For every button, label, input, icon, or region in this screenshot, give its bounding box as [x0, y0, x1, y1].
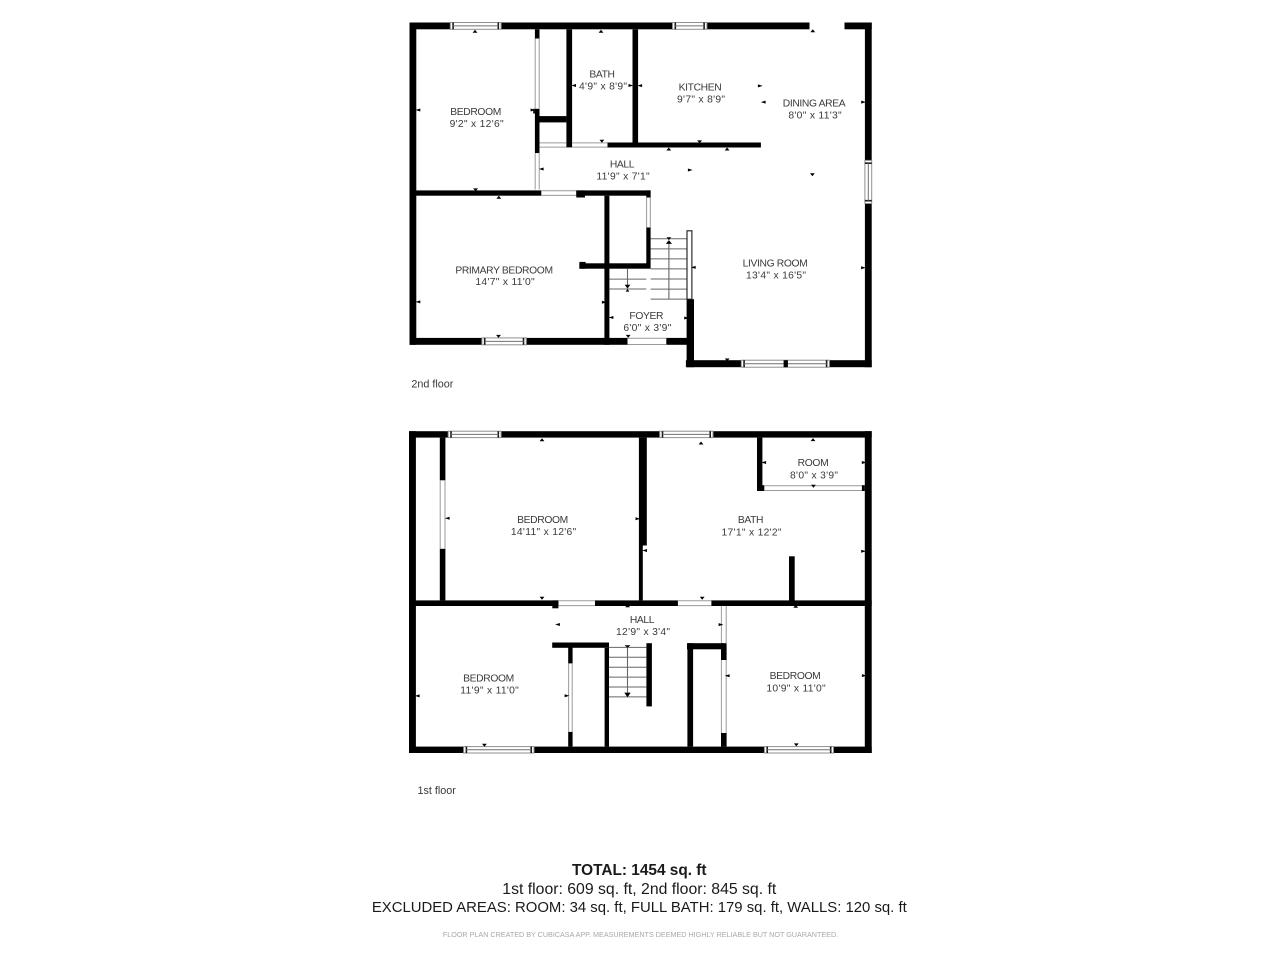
svg-text:9'2" x 12'6": 9'2" x 12'6" — [450, 119, 504, 130]
svg-text:9'7" x 8'9": 9'7" x 8'9" — [677, 94, 725, 105]
svg-text:BEDROOM: BEDROOM — [463, 674, 514, 685]
svg-text:14'11" x 12'6": 14'11" x 12'6" — [511, 527, 577, 538]
svg-text:12'9" x 3'4": 12'9" x 3'4" — [616, 627, 670, 638]
svg-text:14'7" x 11'0": 14'7" x 11'0" — [475, 277, 535, 288]
svg-text:BEDROOM: BEDROOM — [517, 515, 568, 526]
svg-text:LIVING ROOM: LIVING ROOM — [743, 258, 808, 269]
svg-text:10'9" x 11'0": 10'9" x 11'0" — [766, 684, 826, 695]
svg-text:FLOOR PLAN CREATED BY CUBICASA: FLOOR PLAN CREATED BY CUBICASA APP. MEAS… — [443, 930, 838, 939]
svg-text:DINING AREA: DINING AREA — [783, 99, 846, 110]
svg-text:13'4" x 16'5": 13'4" x 16'5" — [746, 270, 806, 281]
svg-text:4'9" x 8'9": 4'9" x 8'9" — [579, 81, 627, 92]
svg-text:KITCHEN: KITCHEN — [679, 83, 722, 94]
svg-text:17'1" x 12'2": 17'1" x 12'2" — [722, 528, 782, 539]
svg-text:HALL: HALL — [610, 160, 635, 171]
svg-text:ROOM: ROOM — [798, 458, 829, 469]
svg-text:6'0" x 3'9": 6'0" x 3'9" — [623, 323, 671, 334]
svg-text:BEDROOM: BEDROOM — [770, 671, 821, 682]
svg-text:1st floor: 1st floor — [418, 785, 457, 797]
svg-text:HALL: HALL — [630, 615, 655, 626]
svg-text:BATH: BATH — [589, 69, 614, 80]
svg-text:11'9" x 7'1": 11'9" x 7'1" — [596, 171, 650, 182]
svg-text:11'9" x 11'0": 11'9" x 11'0" — [460, 685, 519, 696]
svg-text:BEDROOM: BEDROOM — [450, 107, 501, 118]
svg-text:8'0" x 11'3": 8'0" x 11'3" — [788, 110, 842, 121]
svg-text:8'0" x 3'9": 8'0" x 3'9" — [790, 471, 838, 482]
svg-text:FOYER: FOYER — [629, 311, 663, 322]
svg-text:EXCLUDED AREAS: ROOM: 34 sq. f: EXCLUDED AREAS: ROOM: 34 sq. ft, FULL BA… — [372, 900, 908, 916]
svg-text:2nd floor: 2nd floor — [411, 378, 453, 390]
svg-text:TOTAL: 1454 sq. ft: TOTAL: 1454 sq. ft — [572, 862, 707, 879]
svg-text:1st floor: 609 sq. ft, 2nd flo: 1st floor: 609 sq. ft, 2nd floor: 845 sq… — [502, 881, 777, 898]
svg-text:BATH: BATH — [738, 515, 763, 526]
svg-text:PRIMARY BEDROOM: PRIMARY BEDROOM — [455, 265, 552, 276]
